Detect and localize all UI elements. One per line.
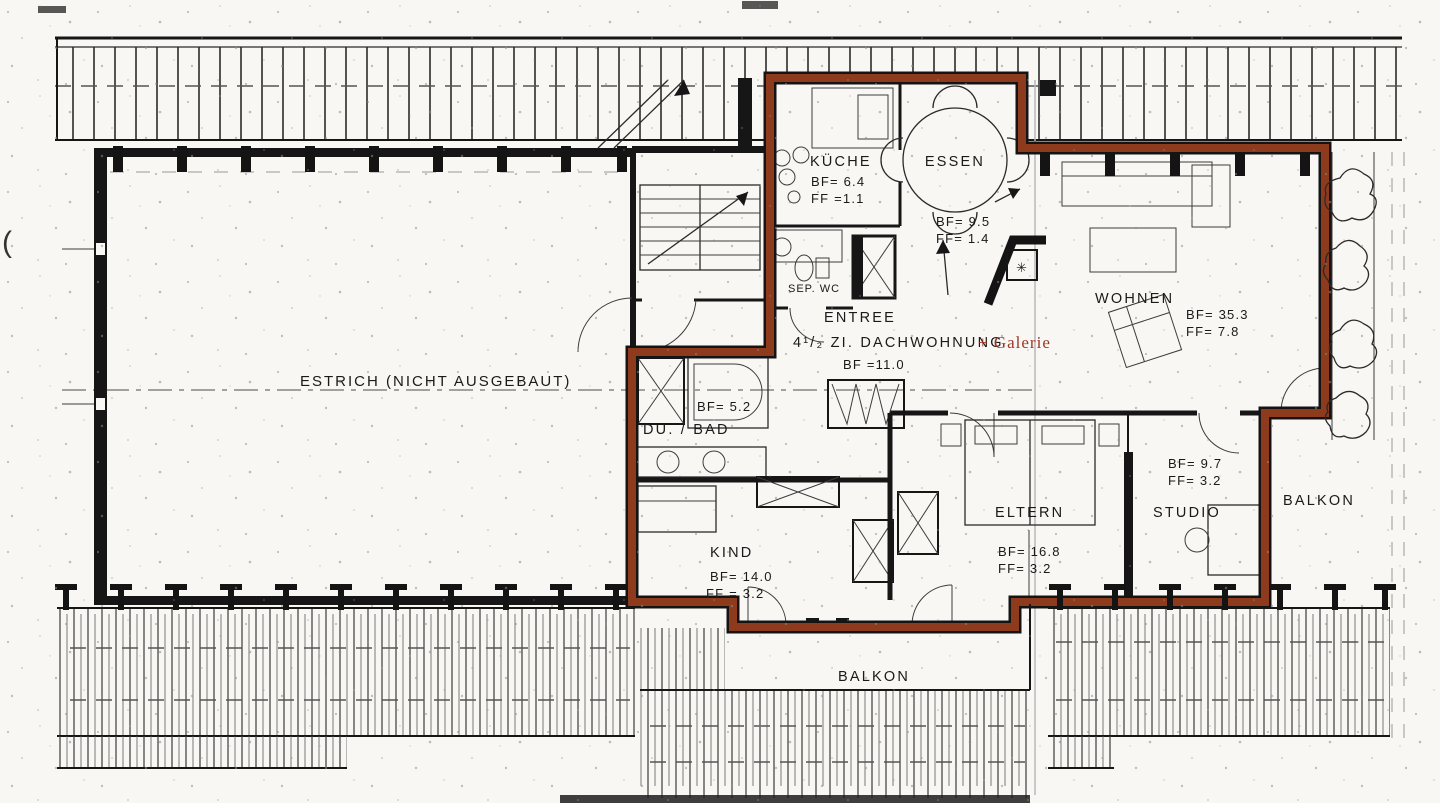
- apartment-title: 4¹/₂ ZI. DACHWOHNUNG: [793, 335, 1004, 351]
- kind-bf: BF= 14.0: [710, 569, 773, 584]
- eltern-label: ELTERN: [995, 505, 1064, 521]
- studio-ff: FF= 3.2: [1168, 473, 1222, 488]
- bad-bf: BF= 5.2: [697, 399, 751, 414]
- kueche-label: KÜCHE: [810, 152, 872, 170]
- balkon-bottom-label: BALKON: [838, 669, 910, 685]
- eltern-bf: BF= 16.8: [998, 544, 1061, 559]
- wohnen-ff: FF= 7.8: [1186, 324, 1240, 339]
- apartment-bf: BF =11.0: [843, 357, 905, 372]
- galerie-label: + Galerie: [978, 333, 1051, 352]
- floor-plan-drawing: ✳: [0, 0, 1440, 803]
- essen-bf: BF= 9.5: [936, 214, 990, 229]
- kueche-bf: BF= 6.4: [811, 174, 865, 189]
- balkon-right-label: BALKON: [1283, 493, 1355, 509]
- kueche-ff: FF =1.1: [811, 191, 865, 206]
- studio-bf: BF= 9.7: [1168, 456, 1222, 471]
- paren-artifact: (: [2, 226, 12, 259]
- essen-ff: FF= 1.4: [936, 231, 990, 246]
- wohnen-label: WOHNEN: [1095, 291, 1174, 307]
- entree-label: ENTREE: [824, 310, 896, 326]
- floor-plan-page: ✳: [0, 0, 1440, 803]
- kind-label: KIND: [710, 545, 753, 561]
- kind-ff: FF = 3.2: [706, 586, 764, 601]
- estrich-label: ESTRICH (NICHT AUSGEBAUT): [300, 373, 571, 390]
- bad-label: DU. / BAD: [643, 422, 730, 438]
- eltern-ff: FF= 3.2: [998, 561, 1052, 576]
- wohnen-bf: BF= 35.3: [1186, 307, 1249, 322]
- essen-label: ESSEN: [925, 154, 985, 170]
- studio-label: STUDIO: [1153, 505, 1221, 521]
- wc-label: SEP. WC: [788, 283, 840, 295]
